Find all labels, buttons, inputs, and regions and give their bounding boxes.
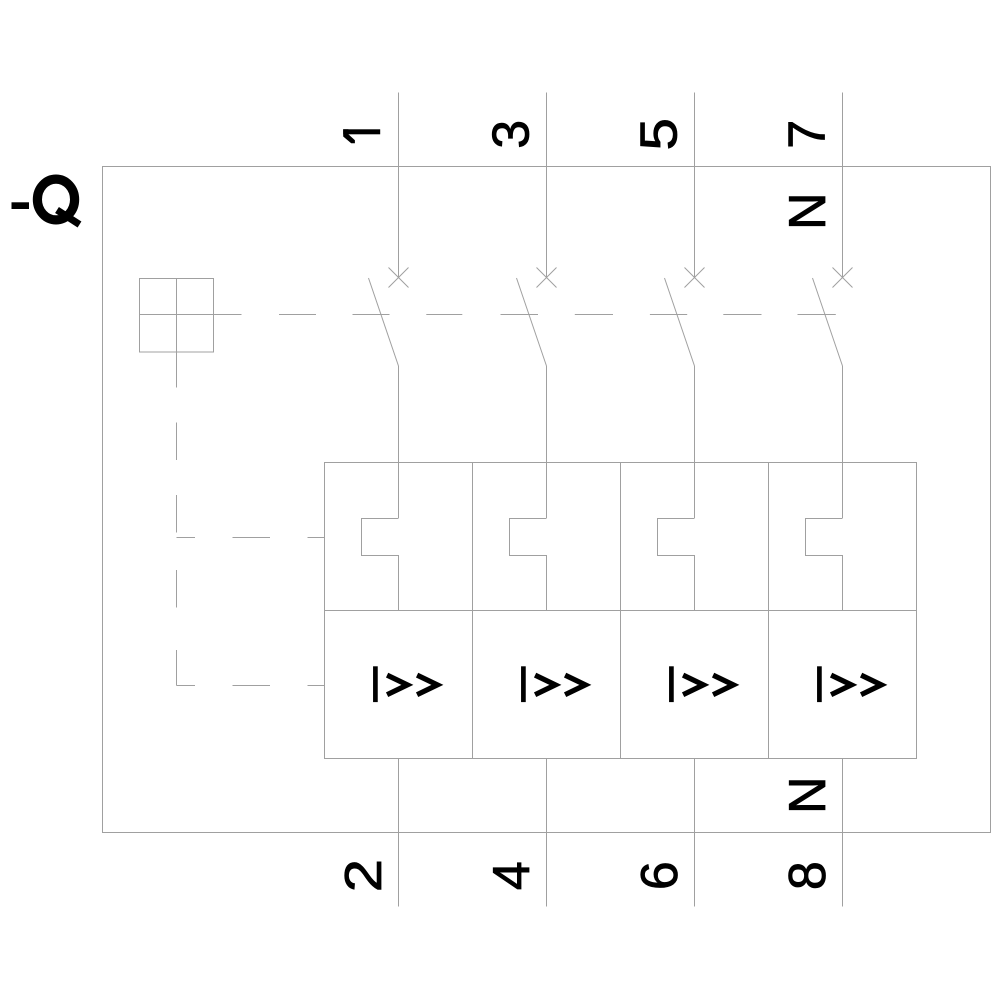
svg-text:4: 4 — [483, 861, 541, 890]
svg-text:3: 3 — [483, 120, 541, 149]
svg-text:6: 6 — [631, 861, 689, 890]
svg-text:5: 5 — [631, 118, 689, 151]
svg-text:2: 2 — [335, 859, 393, 893]
svg-text:N: N — [779, 776, 837, 814]
svg-text:N: N — [779, 192, 837, 230]
svg-text:7: 7 — [779, 120, 837, 149]
svg-text:8: 8 — [779, 861, 837, 890]
